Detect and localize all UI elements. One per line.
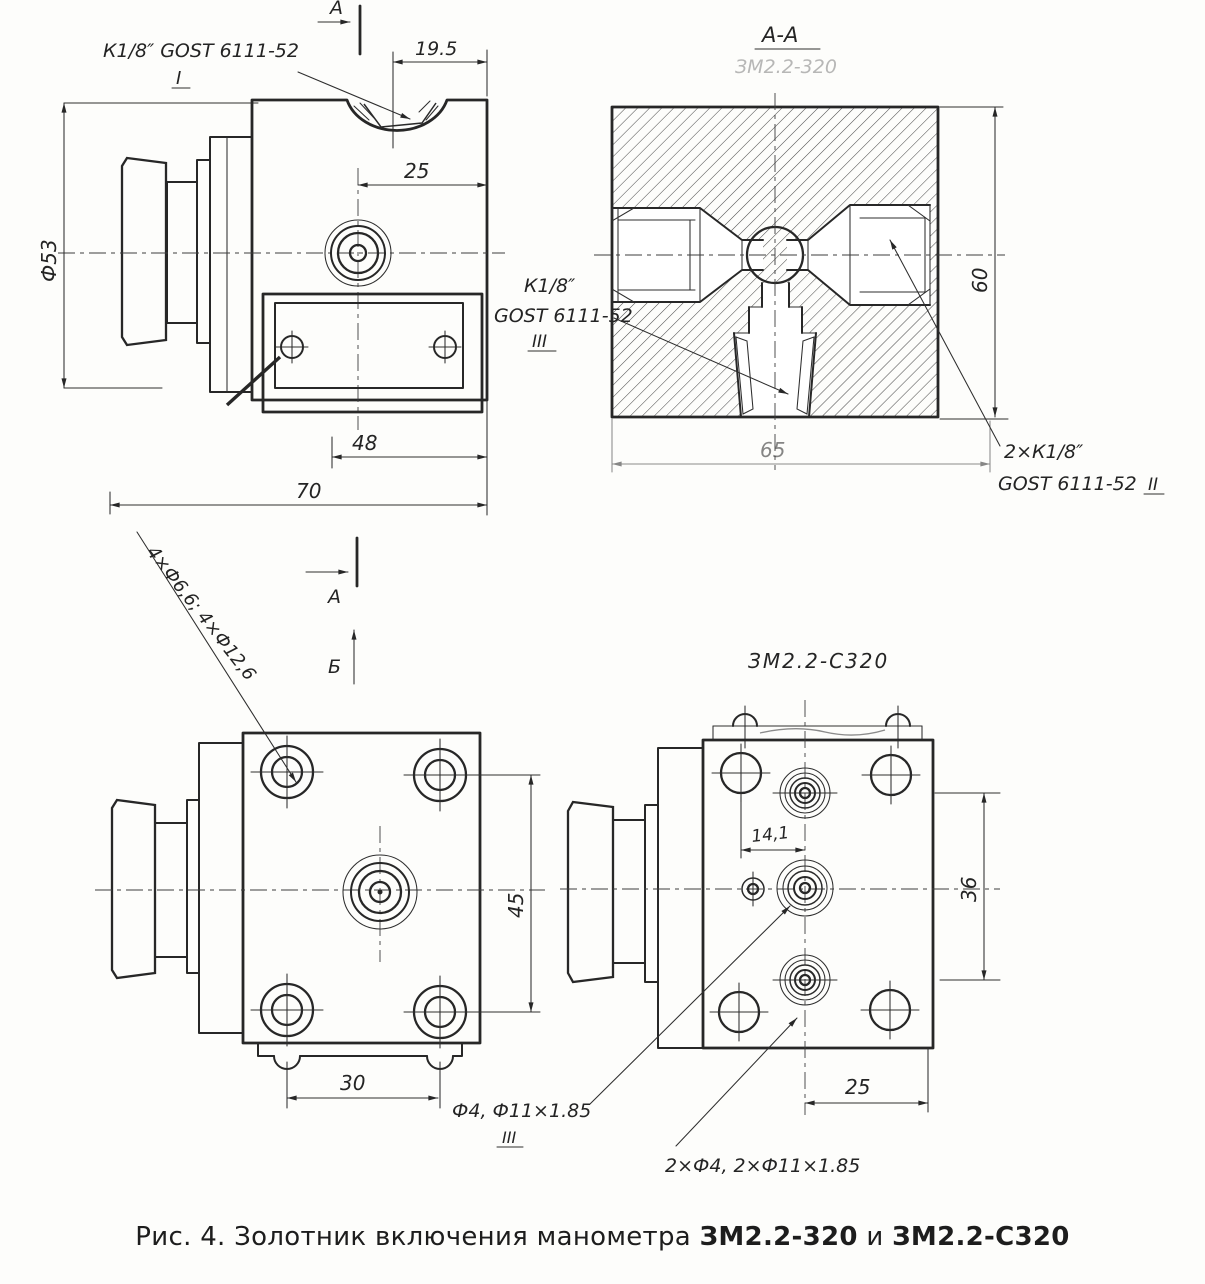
bottom-port-label: Ф4, Ф11×1.85 III	[452, 1100, 591, 1147]
s320-ports-text: 2×Ф4, 2×Ф11×1.85	[665, 1155, 860, 1177]
dim-65: 65	[612, 419, 990, 472]
bottom-port-numeral: III	[502, 1128, 516, 1147]
s320-flange	[658, 748, 703, 1048]
port3-gost-text: GOST 6111-52	[494, 305, 633, 327]
dim-19-5: 19.5	[393, 38, 487, 148]
front-view: А К1/8″ GOST 6111-52 I 19.5	[37, 0, 505, 515]
dim-48: 48	[332, 400, 487, 515]
dim-30: 30	[287, 1062, 440, 1108]
mount-holes-label: 4×Ф6,6; 4×Ф12,6	[137, 532, 296, 782]
name-plate	[227, 294, 482, 412]
section-letter-a: А	[326, 586, 341, 608]
bottom-flange-step	[187, 800, 199, 973]
port3-thread-text: К1/8″	[524, 275, 575, 297]
mounting-flange	[210, 137, 252, 392]
counterbore-hole-bl	[251, 974, 323, 1046]
counterbore-hole-tr	[404, 739, 476, 811]
technical-drawing: А К1/8″ GOST 6111-52 I 19.5	[0, 0, 1205, 1284]
section-cut-marker-top: А	[318, 0, 360, 54]
dim-48-text: 48	[352, 431, 377, 455]
section-subtitle-text: ЗМ2.2-320	[735, 56, 837, 78]
port1-thread-label: К1/8″ GOST 6111-52	[103, 40, 299, 62]
s320-view: ЗМ2.2-С320	[560, 649, 1000, 1177]
section-letter-a-top: А	[328, 0, 343, 19]
dim-65-text: 65	[760, 438, 785, 462]
dim-d53: Ф53	[37, 103, 258, 388]
flange-step	[197, 160, 210, 343]
dim-70: 70	[110, 479, 487, 514]
port1-roman-numeral: I	[176, 68, 181, 89]
through-hole-bl	[710, 983, 768, 1041]
section-title: А-А ЗМ2.2-320	[735, 23, 837, 78]
dim-25-s320: 25	[805, 1048, 928, 1112]
dim-45-text: 45	[504, 893, 528, 918]
plate-leader-stroke	[227, 357, 280, 405]
knurled-knob	[122, 158, 166, 345]
s320-knob-shaft	[613, 820, 645, 963]
dim-14-1-text: 14,1	[750, 823, 790, 847]
section-cut-marker-a: А	[306, 538, 357, 608]
mount-holes-text: 4×Ф6,6; 4×Ф12,6	[142, 542, 260, 685]
view-marker-b: Б	[328, 630, 354, 684]
dim-30-text: 30	[340, 1071, 365, 1095]
dim-25: 25	[358, 159, 487, 185]
bottom-tabs	[258, 1043, 462, 1069]
dim-60-text: 60	[968, 268, 992, 293]
dim-70-text: 70	[296, 479, 321, 503]
port2-roman-numeral: II	[1148, 475, 1158, 495]
s320-flange-step	[645, 805, 658, 982]
caption-prefix: Рис. 4. Золотник включения манометра	[135, 1222, 691, 1252]
figure-page: А К1/8″ GOST 6111-52 I 19.5	[0, 0, 1205, 1284]
bottom-view: 4×Ф6,6; 4×Ф12,6 А Б	[95, 532, 591, 1147]
port2-thread-text: 2×К1/8″	[1004, 441, 1083, 463]
counterbore-hole-tl	[251, 736, 323, 808]
dim-25-text: 25	[404, 159, 429, 183]
s320-title-text: ЗМ2.2-С320	[748, 649, 889, 673]
top-pin-strip	[713, 706, 922, 748]
bottom-knurled-knob	[112, 800, 155, 978]
dim-14-1: 14,1	[741, 797, 805, 858]
through-hole-br	[861, 981, 919, 1039]
figure-caption: Рис. 4. Золотник включения манометра ЗМ2…	[0, 1222, 1205, 1252]
dim-25-s320-text: 25	[845, 1075, 870, 1099]
dim-19-5-text: 19.5	[415, 38, 457, 60]
through-hole-tr	[862, 746, 920, 804]
port2-gost-text: GOST 6111-52	[998, 473, 1137, 495]
dim-d53-text: Ф53	[37, 239, 61, 282]
port3-roman-numeral: III	[532, 332, 547, 352]
counterbore-hole-br	[404, 976, 476, 1048]
section-title-text: А-А	[760, 23, 798, 47]
s320-ports-label: 2×Ф4, 2×Ф11×1.85	[590, 906, 860, 1177]
bottom-port-leader	[676, 1018, 797, 1146]
caption-model-2: ЗМ2.2-С320	[892, 1222, 1070, 1252]
dim-36-text: 36	[957, 877, 981, 902]
through-hole-tl	[712, 744, 770, 802]
s320-knurled-knob	[568, 802, 613, 982]
view-letter-b: Б	[328, 656, 341, 678]
knob-shaft	[167, 182, 197, 323]
dim-36: 36	[935, 793, 1000, 980]
bottom-port-text: Ф4, Ф11×1.85	[452, 1100, 591, 1122]
caption-conjunction: и	[866, 1222, 883, 1252]
bottom-flange	[199, 743, 243, 1033]
caption-model-1: ЗМ2.2-320	[700, 1222, 858, 1252]
dim-60: 60	[940, 107, 1008, 419]
section-view-a-a: А-А ЗМ2.2-320	[494, 23, 1164, 495]
middle-port-leader	[590, 906, 790, 1104]
